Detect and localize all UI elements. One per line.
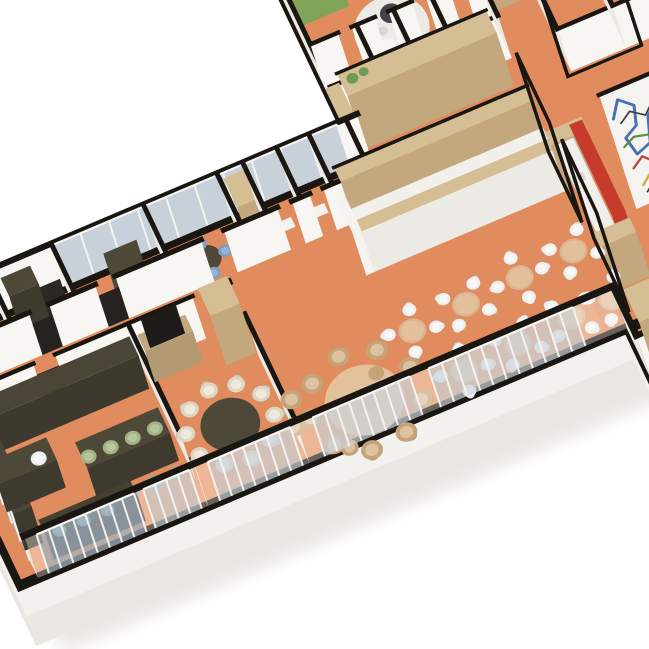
floorplan-3d-viewport[interactable]	[0, 0, 649, 649]
plan-projection-group	[0, 0, 649, 649]
render-canvas	[0, 0, 649, 649]
